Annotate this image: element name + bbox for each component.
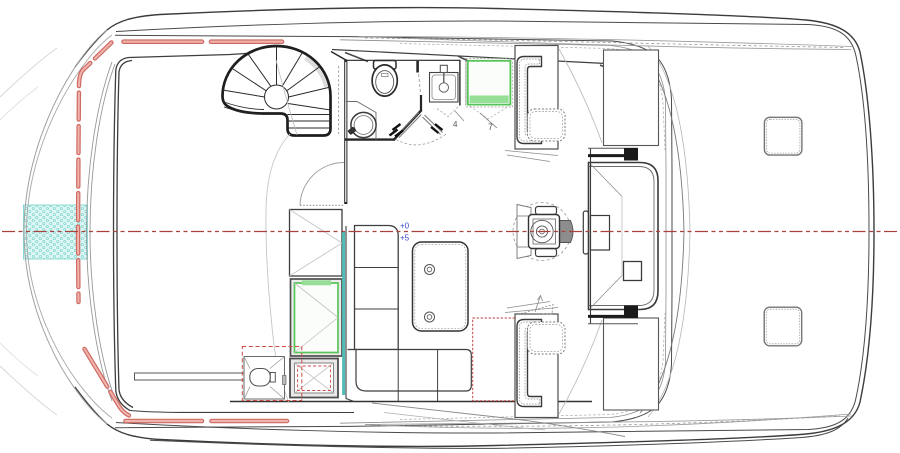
svg-text:7: 7 xyxy=(488,122,493,132)
svg-text:4: 4 xyxy=(453,120,458,129)
svg-text:+0: +0 xyxy=(400,222,410,231)
svg-text:+5: +5 xyxy=(400,234,410,243)
